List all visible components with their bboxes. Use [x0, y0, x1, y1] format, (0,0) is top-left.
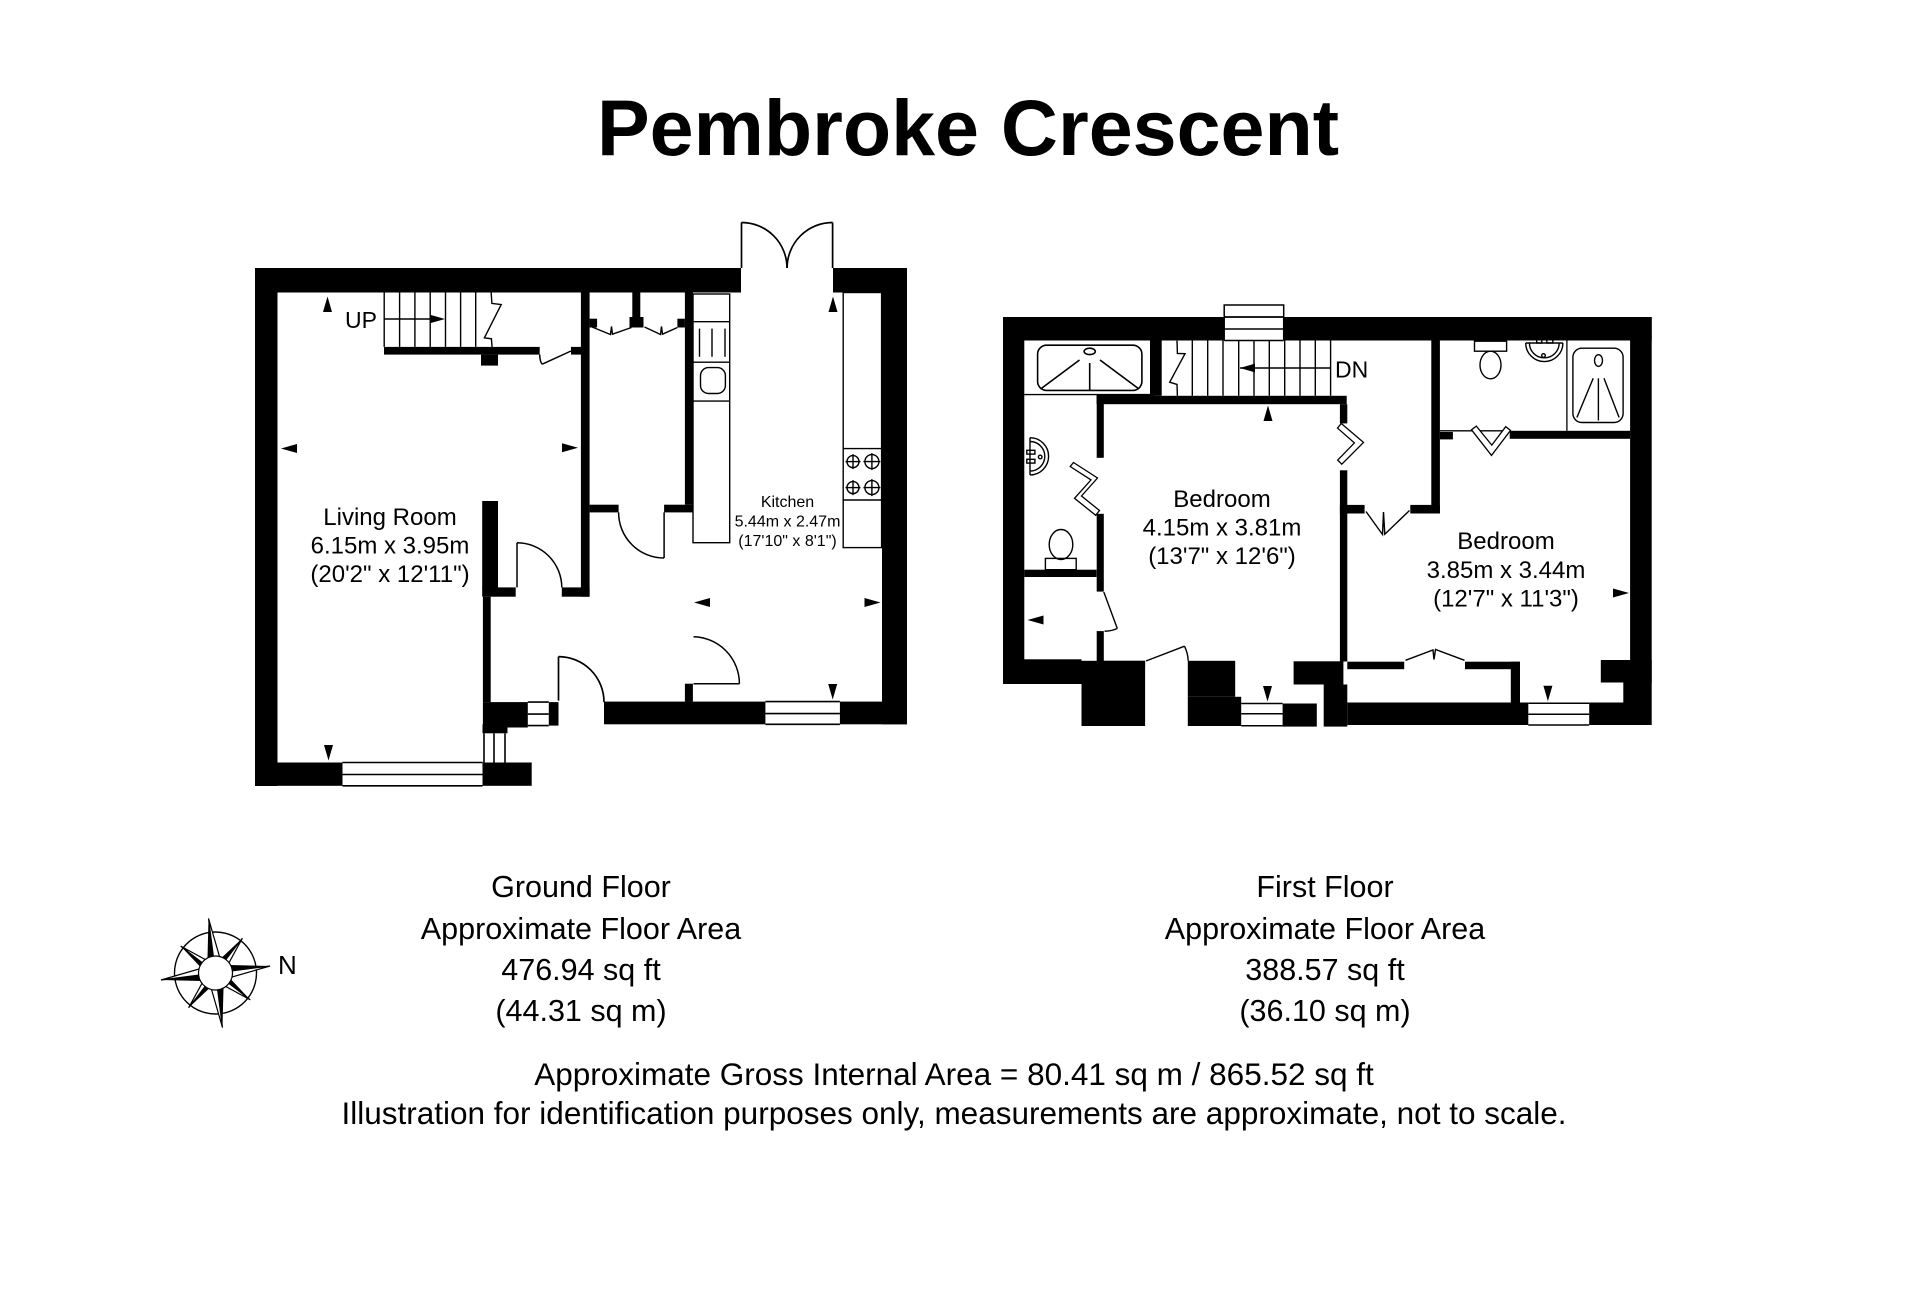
svg-text:Kitchen: Kitchen	[761, 494, 814, 511]
svg-text:5.44m x 2.47m: 5.44m x 2.47m	[735, 514, 841, 531]
svg-text:UP: UP	[345, 307, 377, 333]
svg-text:Ground Floor: Ground Floor	[491, 870, 671, 904]
svg-text:(17'10" x 8'1"): (17'10" x 8'1")	[738, 533, 836, 550]
svg-text:Illustration for identificatio: Illustration for identification purposes…	[341, 1095, 1566, 1131]
svg-text:Pembroke Crescent: Pembroke Crescent	[597, 83, 1339, 172]
svg-text:388.57 sq ft: 388.57 sq ft	[1245, 953, 1405, 987]
svg-text:6.15m x 3.95m: 6.15m x 3.95m	[311, 533, 470, 560]
svg-text:476.94 sq ft: 476.94 sq ft	[501, 953, 661, 987]
svg-text:N: N	[278, 950, 297, 980]
svg-text:First Floor: First Floor	[1256, 870, 1393, 904]
svg-text:3.85m x 3.44m: 3.85m x 3.44m	[1427, 557, 1586, 584]
svg-text:Approximate Floor Area: Approximate Floor Area	[1165, 912, 1485, 946]
svg-text:4.15m x 3.81m: 4.15m x 3.81m	[1143, 515, 1302, 542]
svg-text:(13'7" x 12'6"): (13'7" x 12'6")	[1148, 543, 1296, 570]
svg-text:Approximate Gross Internal Are: Approximate Gross Internal Area = 80.41 …	[534, 1056, 1374, 1092]
svg-text:(20'2" x 12'11"): (20'2" x 12'11")	[310, 561, 469, 588]
svg-text:(12'7" x 11'3"): (12'7" x 11'3")	[1433, 586, 1579, 613]
svg-text:Bedroom: Bedroom	[1173, 486, 1270, 513]
svg-text:Bedroom: Bedroom	[1457, 528, 1554, 555]
svg-text:Living Room: Living Room	[323, 504, 456, 531]
svg-text:(44.31 sq m): (44.31 sq m)	[495, 994, 666, 1028]
svg-text:(36.10 sq m): (36.10 sq m)	[1239, 994, 1410, 1028]
svg-text:Approximate Floor Area: Approximate Floor Area	[421, 912, 741, 946]
svg-text:DN: DN	[1335, 357, 1368, 383]
